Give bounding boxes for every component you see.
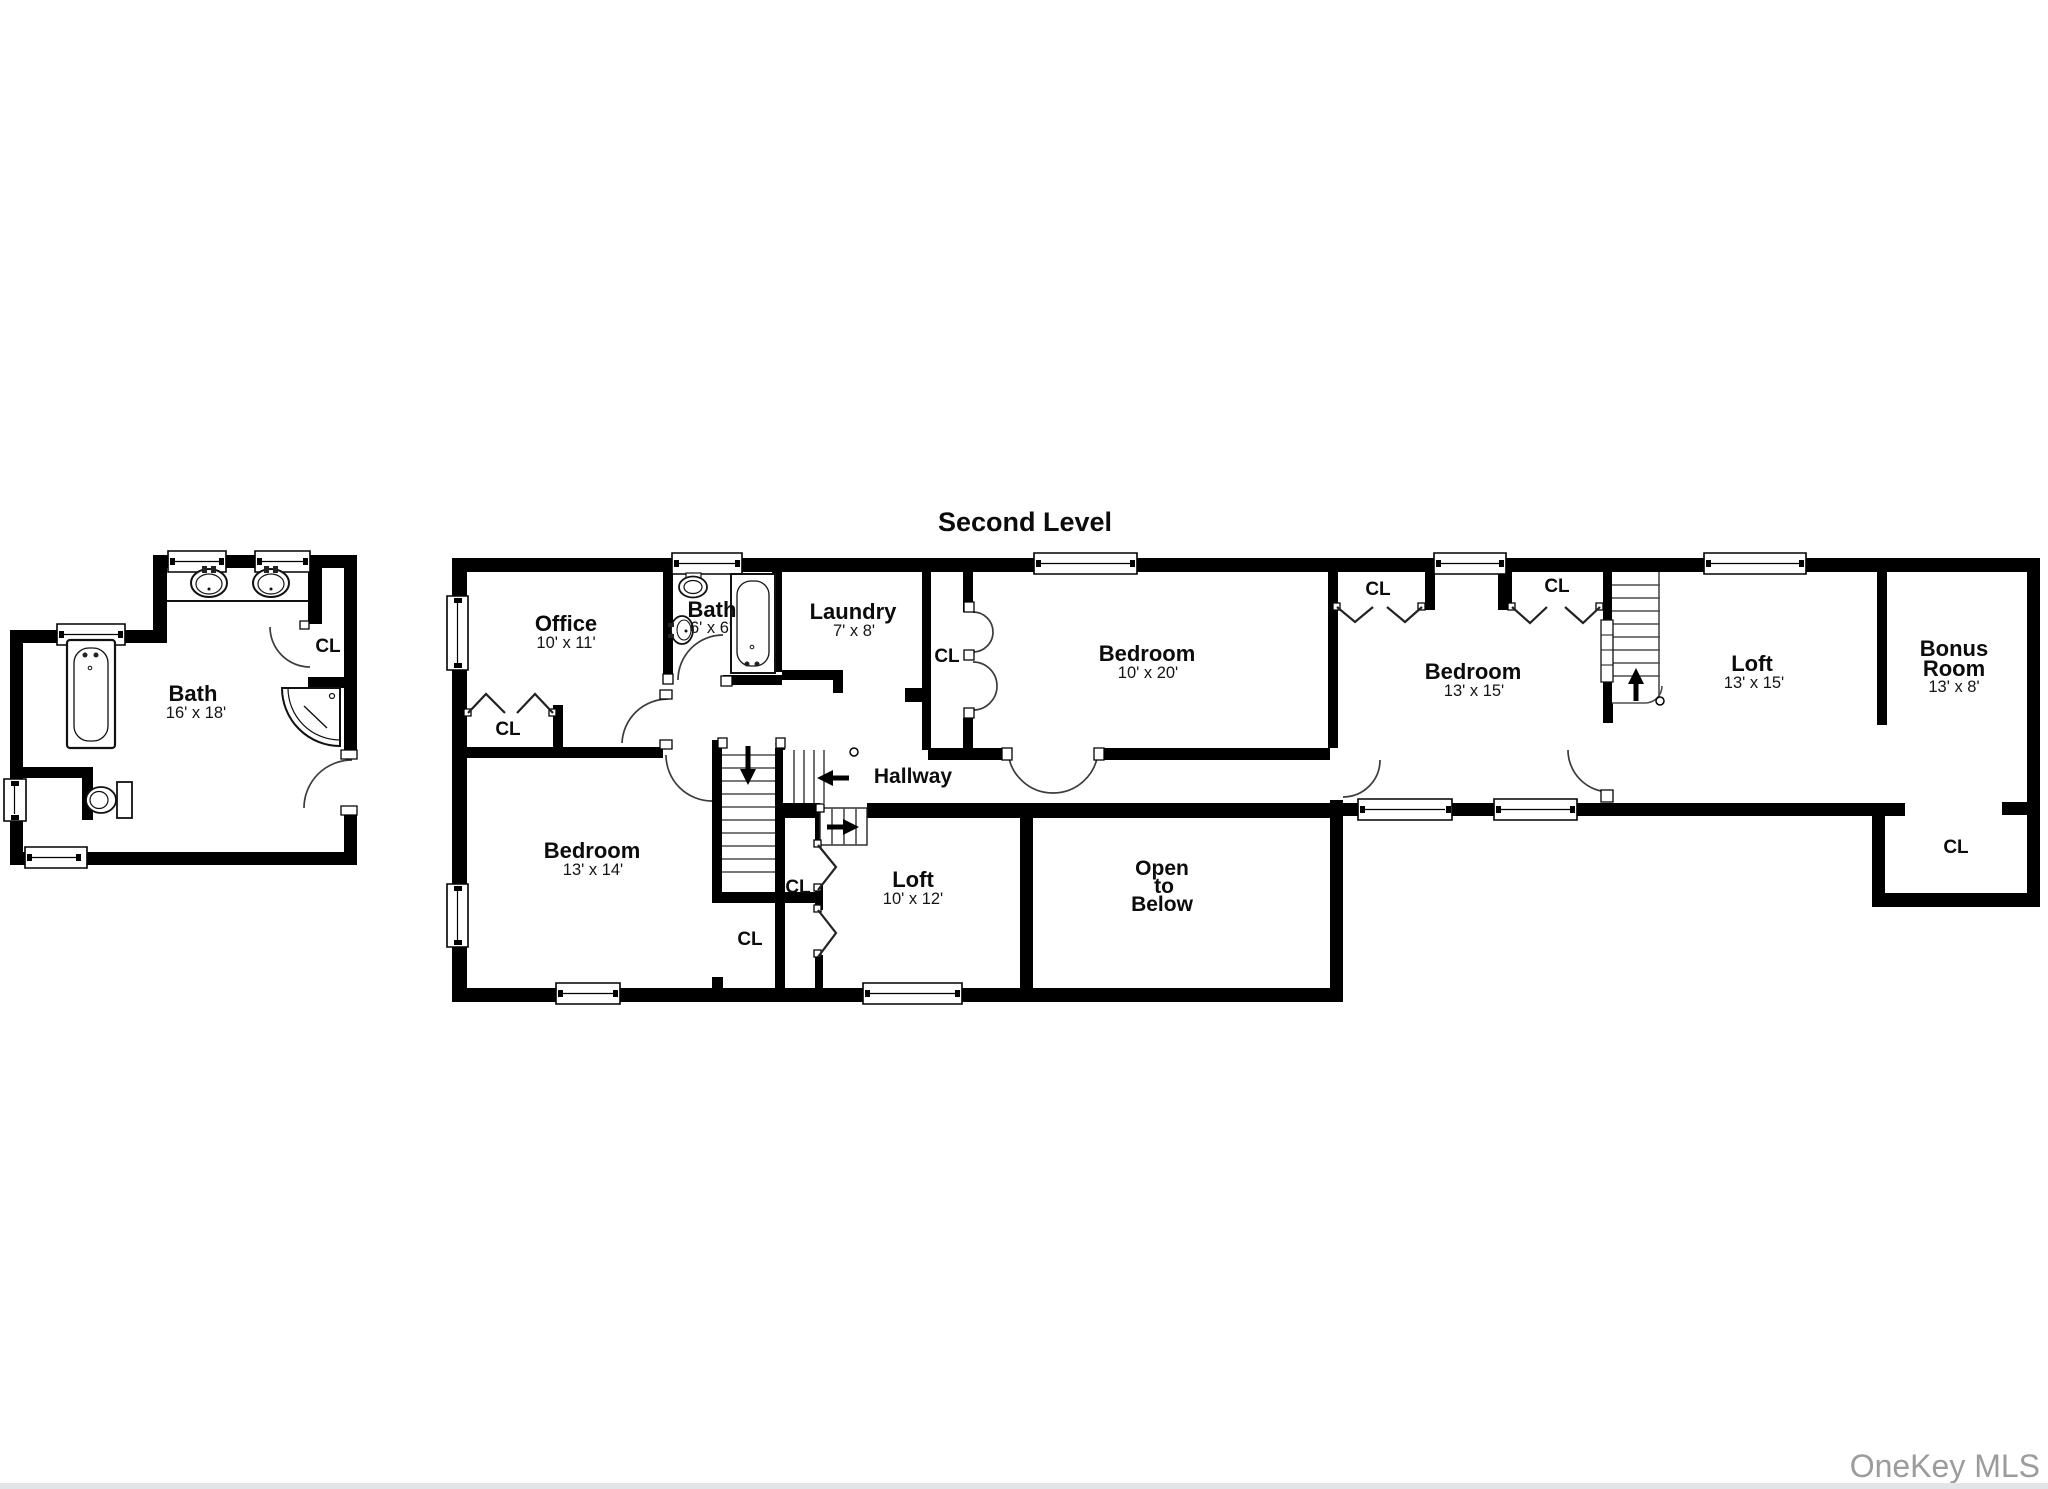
bottom-edge-strip	[0, 1483, 2048, 1489]
closet-label: CL	[785, 877, 811, 898]
floor-plan-canvas: Second Level Bath 16' x 18' CL Office 10…	[0, 0, 2048, 1489]
floor-plan-page: Second Level Bath 16' x 18' CL Office 10…	[0, 0, 2048, 1489]
bathtub-icon	[67, 640, 115, 748]
room-small-bath: Bath 6' x 6'	[688, 597, 737, 637]
room-dims: 13' x 14'	[563, 861, 623, 879]
room-name: Office	[535, 611, 597, 636]
room-dims: 10' x 11'	[536, 634, 595, 652]
room-name: Loft	[892, 867, 934, 892]
page-title: Second Level	[938, 507, 1112, 537]
open-to-below-line: Below	[1131, 893, 1194, 916]
bathtub-icon	[731, 574, 775, 673]
room-dims: 16' x 18'	[166, 704, 226, 722]
room-dims: 13' x 15'	[1724, 674, 1784, 692]
room-name: Bath	[169, 681, 218, 706]
closet-label: CL	[1544, 576, 1570, 597]
room-bonus-room: Bonus Room 13' x 8'	[1920, 636, 1988, 696]
room-name: Bedroom	[544, 838, 641, 863]
newel-post-icon	[850, 748, 858, 756]
room-dims: 6' x 6'	[690, 619, 732, 637]
room-name: Bedroom	[1099, 641, 1196, 666]
room-name: Loft	[1731, 651, 1773, 676]
closet-label: CL	[737, 929, 763, 950]
closet-label: CL	[1943, 837, 1969, 858]
hallway-label: Hallway	[874, 765, 953, 788]
background	[0, 0, 2048, 1489]
room-primary-bath: Bath 16' x 18'	[166, 681, 226, 722]
room-name: Bedroom	[1425, 659, 1522, 684]
stair-railing-panel	[1601, 620, 1613, 682]
room-office: Office 10' x 11'	[535, 611, 597, 652]
room-dims: 10' x 20'	[1118, 664, 1178, 682]
room-dims: 13' x 8'	[1928, 678, 1979, 696]
room-dims: 7' x 8'	[833, 622, 875, 640]
room-dims: 13' x 15'	[1444, 682, 1504, 700]
newel-post-icon	[1656, 697, 1664, 705]
watermark: OneKey MLS	[1850, 1448, 2040, 1484]
closet-label: CL	[495, 719, 521, 740]
closet-label: CL	[315, 636, 341, 657]
closet-label: CL	[934, 646, 960, 667]
room-dims: 10' x 12'	[883, 890, 943, 908]
room-name: Laundry	[810, 599, 898, 624]
closet-label: CL	[1365, 579, 1391, 600]
